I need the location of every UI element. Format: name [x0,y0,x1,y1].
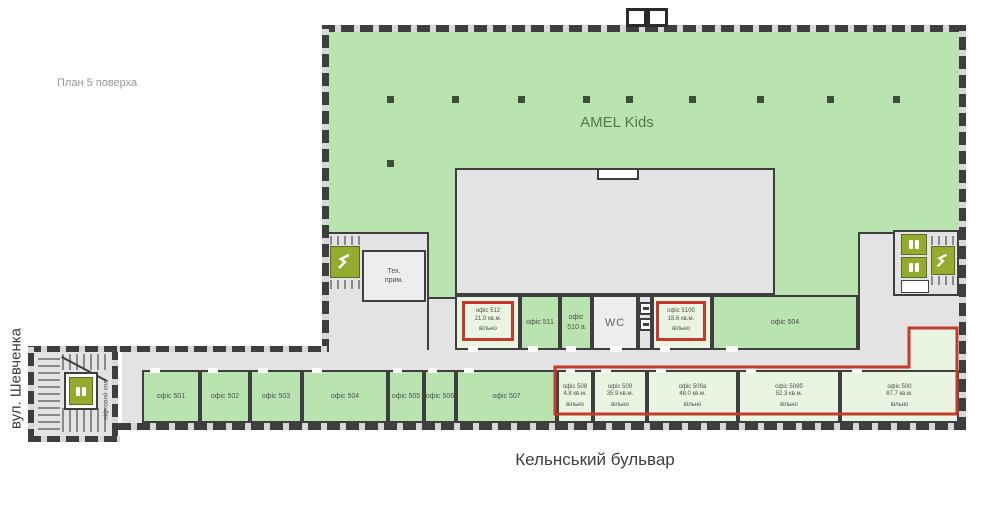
wall-segment [118,423,966,430]
wall-segment [28,346,34,442]
parapet-box [626,8,647,27]
parapet-box [647,8,668,27]
wall-segment [322,25,329,352]
wall-segment [28,436,120,442]
wall-segment [28,346,120,352]
wall-segment [959,25,966,430]
wall-segment [118,346,328,352]
wall-segment [112,352,118,436]
floor-plan-canvas: План 5 поверха вул. Шевченка Кельнський … [0,0,1000,505]
